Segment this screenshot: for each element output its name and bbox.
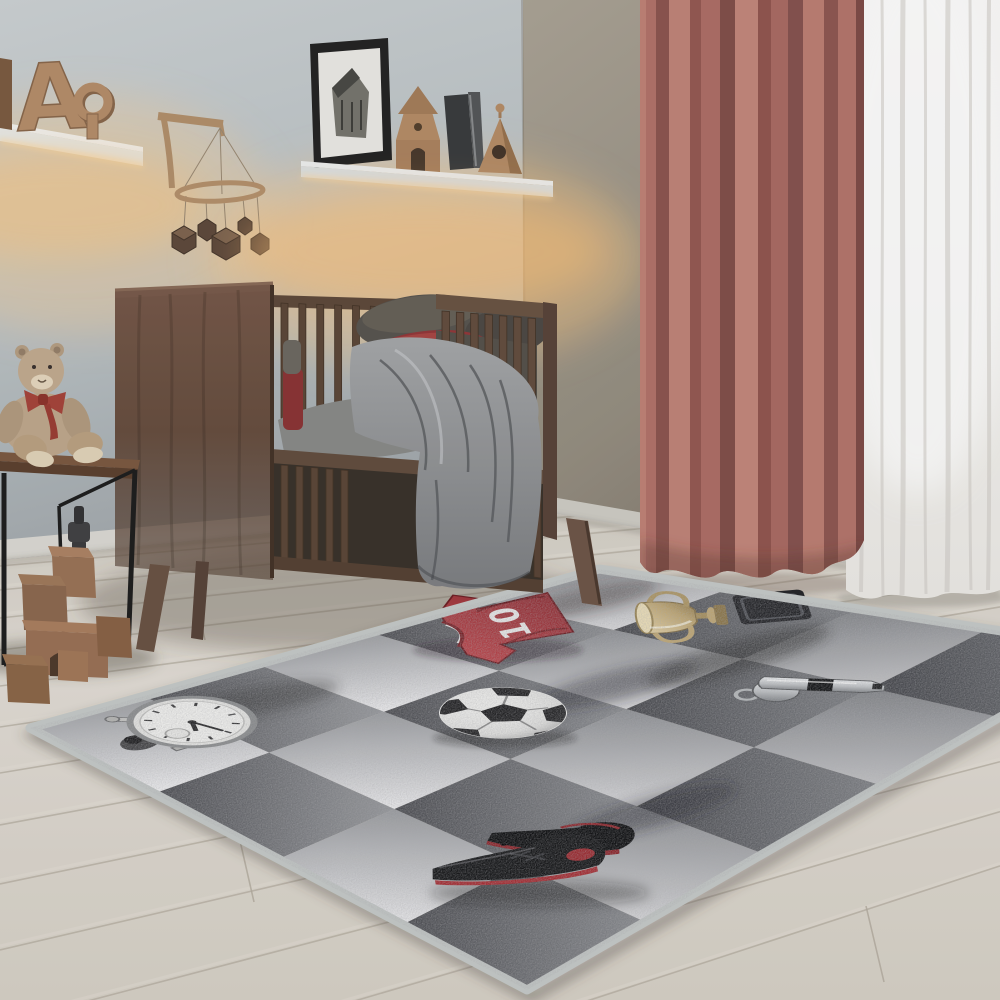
red-pillow-edge [283,368,303,430]
block-cube-4 [58,650,88,682]
books [444,92,484,170]
wooden-letter-partial [0,58,12,130]
framed-art [310,38,392,168]
curtain-area [640,0,1000,600]
crib-left-panel [115,283,273,580]
crib-right-post [543,302,557,540]
rose-curtain [640,0,884,600]
block-cube-3 [96,616,132,658]
block-cube-5 [6,664,50,704]
nursery-photo: 10 [0,0,1000,1000]
